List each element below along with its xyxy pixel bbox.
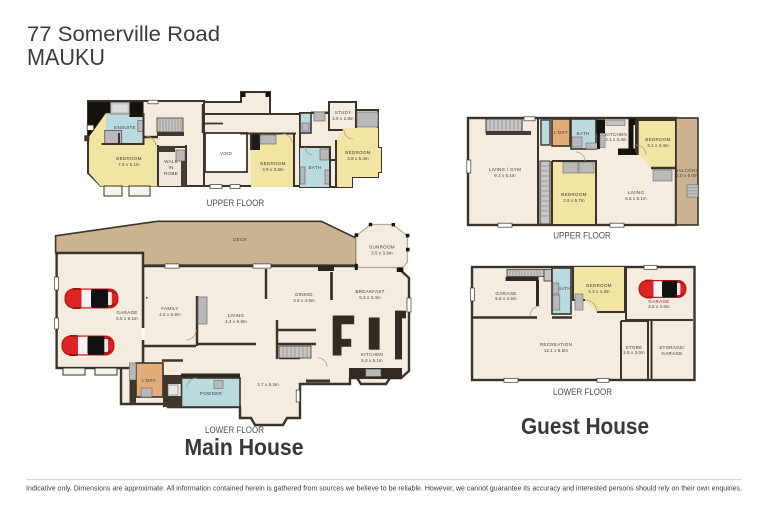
svg-text:STORAGE/: STORAGE/ (659, 345, 685, 350)
svg-text:9.1 x 5.1m: 9.1 x 5.1m (494, 173, 516, 178)
svg-text:UPPER FLOOR: UPPER FLOOR (207, 198, 265, 209)
svg-text:4.5 x 5.9m: 4.5 x 5.9m (159, 312, 181, 317)
svg-text:ROBE: ROBE (164, 171, 178, 176)
svg-text:2.0 x 5.0m: 2.0 x 5.0m (676, 173, 698, 178)
svg-text:3.1 x 4.4m: 3.1 x 4.4m (647, 143, 669, 148)
svg-text:UPPER FLOOR: UPPER FLOOR (553, 231, 611, 242)
svg-text:KITCHEN: KITCHEN (361, 352, 383, 357)
svg-text:GARAGE: GARAGE (116, 310, 137, 315)
svg-text:Indicative only. Dimensions ar: Indicative only. Dimensions are approxim… (26, 483, 742, 492)
svg-text:ENSUITE: ENSUITE (114, 125, 136, 130)
svg-text:Guest House: Guest House (521, 413, 649, 439)
svg-text:MAUKU: MAUKU (27, 44, 105, 70)
svg-text:3.8 x 5.4m: 3.8 x 5.4m (347, 156, 369, 161)
svg-text:6.5 x 9.1m: 6.5 x 9.1m (116, 316, 138, 321)
svg-text:IN: IN (168, 165, 173, 170)
svg-text:L'DRY: L'DRY (554, 130, 568, 135)
svg-text:5.6 x 4.5m: 5.6 x 4.5m (495, 296, 517, 301)
svg-text:DINING: DINING (295, 292, 313, 297)
svg-text:BREAKFAST: BREAKFAST (355, 289, 384, 294)
svg-text:6.6 x 5.1m: 6.6 x 5.1m (625, 196, 647, 201)
svg-text:GARAGE: GARAGE (661, 351, 682, 356)
svg-text:BEDROOM: BEDROOM (345, 150, 371, 155)
svg-text:BEDROOM: BEDROOM (116, 156, 142, 161)
svg-text:BEDROOM: BEDROOM (561, 192, 587, 197)
svg-text:12.1 x 5.5m: 12.1 x 5.5m (544, 348, 568, 353)
svg-text:SUNROOM: SUNROOM (369, 245, 395, 250)
svg-text:Main House: Main House (185, 434, 304, 460)
svg-text:FAMILY: FAMILY (161, 306, 179, 311)
svg-text:3.7 x 5.3m: 3.7 x 5.3m (257, 382, 279, 387)
svg-text:VOID: VOID (220, 151, 233, 156)
svg-text:BEDROOM: BEDROOM (645, 137, 671, 142)
svg-text:DECK: DECK (233, 237, 247, 242)
svg-text:3.9 x 4.5m: 3.9 x 4.5m (293, 298, 315, 303)
svg-text:7.6 x 5.1m: 7.6 x 5.1m (118, 162, 140, 167)
svg-text:3.1 x 3.4m: 3.1 x 3.4m (605, 137, 627, 142)
svg-text:L'DRY: L'DRY (142, 378, 156, 383)
svg-text:RECREATION: RECREATION (540, 342, 572, 347)
svg-text:5.3 x 5.1m: 5.3 x 5.1m (361, 358, 383, 363)
svg-text:4.3 x 4.3m: 4.3 x 4.3m (588, 289, 610, 294)
svg-text:2.5 x 3.0m: 2.5 x 3.0m (623, 350, 645, 355)
svg-text:77 Somerville Road: 77 Somerville Road (27, 23, 220, 46)
svg-text:BATH: BATH (558, 286, 571, 291)
svg-text:LIVING: LIVING (228, 313, 245, 318)
svg-text:POWDER: POWDER (200, 391, 223, 396)
svg-text:BATH: BATH (577, 131, 590, 136)
svg-text:3.9 x 5.7m: 3.9 x 5.7m (563, 198, 585, 203)
svg-text:LIVING / GYM: LIVING / GYM (489, 167, 521, 172)
svg-text:BATH: BATH (309, 165, 322, 170)
svg-text:LIVING: LIVING (628, 190, 645, 195)
svg-text:5.3 x 3.4m: 5.3 x 3.4m (359, 295, 381, 300)
svg-text:3.5 x 3.6m: 3.5 x 3.6m (371, 251, 393, 256)
svg-text:3.5 x 2.8m: 3.5 x 2.8m (332, 116, 354, 121)
svg-text:3.9 x 3.5m: 3.9 x 3.5m (262, 167, 284, 172)
svg-text:3.6 x 4.6m: 3.6 x 4.6m (648, 304, 670, 309)
svg-text:BEDROOM: BEDROOM (260, 161, 286, 166)
svg-text:BEDROOM: BEDROOM (586, 283, 612, 288)
svg-text:4.4 x 6.8m: 4.4 x 6.8m (225, 319, 247, 324)
svg-text:STUDY: STUDY (335, 110, 352, 115)
svg-text:LOWER FLOOR: LOWER FLOOR (553, 387, 612, 398)
